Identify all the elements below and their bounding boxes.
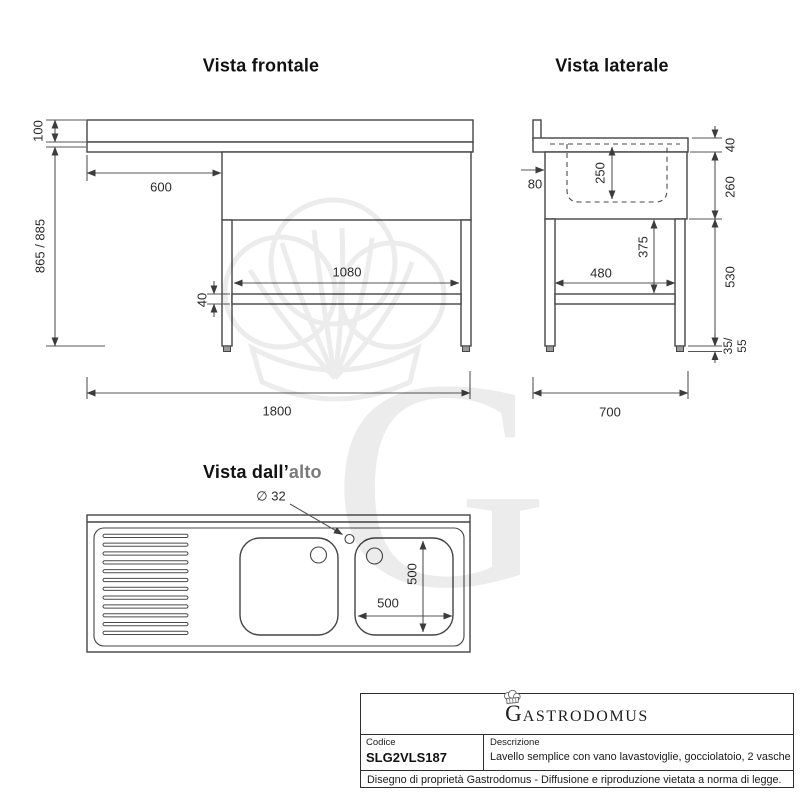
basin-1-drain-hole bbox=[311, 547, 327, 563]
copyright-notice: Disegno di proprietà Gastrodomus - Diffu… bbox=[361, 770, 793, 789]
dim-basin-length: 500 bbox=[406, 563, 419, 585]
technical-drawing bbox=[0, 0, 800, 800]
side-worktop bbox=[533, 138, 688, 152]
view-title-top: Vista dall’alto bbox=[203, 462, 322, 483]
side-backsplash bbox=[533, 120, 541, 140]
side-left-foot bbox=[547, 346, 554, 352]
dim-top-height: 40 bbox=[724, 138, 737, 152]
view-title-front: Vista frontale bbox=[203, 56, 320, 77]
front-worktop-band bbox=[87, 142, 473, 152]
dim-total-height: 865 / 885 bbox=[34, 219, 47, 273]
dim-basin-width: 500 bbox=[377, 597, 399, 610]
dim-brace-length: 1080 bbox=[333, 266, 362, 279]
front-worktop bbox=[87, 120, 473, 142]
dim-backsplash-height: 100 bbox=[32, 120, 45, 142]
view-title-side: Vista laterale bbox=[555, 56, 669, 77]
front-brace bbox=[232, 294, 461, 304]
front-view-drawing bbox=[87, 120, 473, 352]
front-right-foot bbox=[463, 346, 470, 352]
side-right-foot bbox=[677, 346, 684, 352]
side-brace bbox=[555, 294, 675, 304]
dim-leg-to-brace: 375 bbox=[637, 236, 650, 258]
view-title-top-gray: alto bbox=[289, 462, 322, 482]
dim-brace-depth: 480 bbox=[590, 267, 612, 280]
code-label: Codice bbox=[366, 737, 483, 748]
dim-front-offset: 80 bbox=[528, 178, 542, 191]
drawing-sheet: Vista frontale Vista laterale Vista dall… bbox=[0, 0, 800, 800]
side-view-drawing bbox=[533, 120, 688, 352]
dim-foot-min: 35/ bbox=[721, 338, 735, 355]
dim-foot-max: 55 bbox=[735, 339, 749, 352]
code-cell: Codice SLG2VLS187 bbox=[361, 735, 484, 770]
dim-body-height: 260 bbox=[724, 176, 737, 198]
code-value: SLG2VLS187 bbox=[366, 750, 483, 765]
description-cell: Descrizione Lavello semplice con vano la… bbox=[484, 735, 793, 770]
description-value: Lavello semplice con vano lavastoviglie,… bbox=[490, 751, 793, 763]
tap-hole bbox=[345, 535, 354, 544]
front-left-foot bbox=[224, 346, 231, 352]
dim-leg-height: 530 bbox=[724, 266, 737, 288]
side-left-leg bbox=[545, 219, 555, 346]
view-title-top-black: Vista dall’ bbox=[203, 462, 289, 482]
description-label: Descrizione bbox=[490, 737, 793, 748]
brand-logo: GASTRODOMUS bbox=[361, 694, 793, 734]
chef-hat-icon bbox=[502, 690, 522, 706]
dim-dishwasher-width: 600 bbox=[150, 181, 172, 194]
basin-2-drain-hole bbox=[367, 548, 383, 564]
brand-name: ASTRODOMUS bbox=[523, 708, 649, 725]
dim-foot-range: 35/55 bbox=[722, 338, 750, 355]
dim-basin-depth: 250 bbox=[594, 162, 607, 184]
front-sink-body bbox=[222, 152, 471, 220]
dim-brace-height: 40 bbox=[196, 293, 209, 307]
side-sink-body bbox=[545, 152, 687, 219]
front-left-leg bbox=[222, 220, 232, 346]
dim-total-depth: 700 bbox=[599, 406, 621, 419]
front-right-leg bbox=[461, 220, 471, 346]
dim-total-width: 1800 bbox=[263, 405, 292, 418]
side-right-leg bbox=[675, 219, 685, 346]
title-block: GASTRODOMUS Codice SLG2VLS187 Descrizion… bbox=[360, 693, 794, 788]
dim-tap-hole-diameter: ∅ 32 bbox=[256, 490, 285, 503]
title-block-middle-row: Codice SLG2VLS187 Descrizione Lavello se… bbox=[361, 734, 793, 770]
